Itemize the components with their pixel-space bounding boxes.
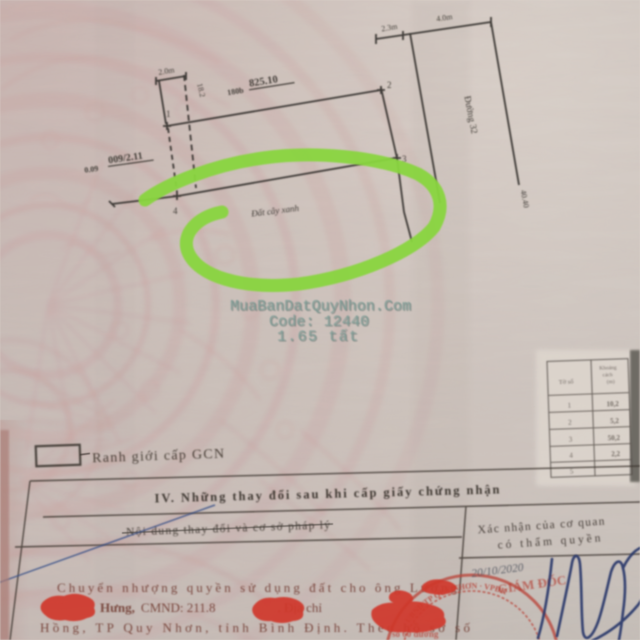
- svg-text:2: 2: [387, 80, 392, 90]
- svg-text:50,2: 50,2: [608, 434, 621, 442]
- svg-text:2,2: 2,2: [611, 450, 621, 458]
- svg-text:1.65 tất: 1.65 tất: [277, 328, 358, 346]
- svg-text:Tờ số: Tờ số: [559, 379, 575, 387]
- svg-text:cách: cách: [602, 372, 613, 378]
- svg-text:Khoảng: Khoảng: [599, 365, 617, 372]
- svg-text:(m): (m): [607, 378, 615, 385]
- svg-text:1: 1: [166, 109, 171, 119]
- svg-text:4: 4: [173, 206, 178, 216]
- svg-text:10,2: 10,2: [606, 400, 619, 408]
- svg-text:5,2: 5,2: [610, 417, 620, 425]
